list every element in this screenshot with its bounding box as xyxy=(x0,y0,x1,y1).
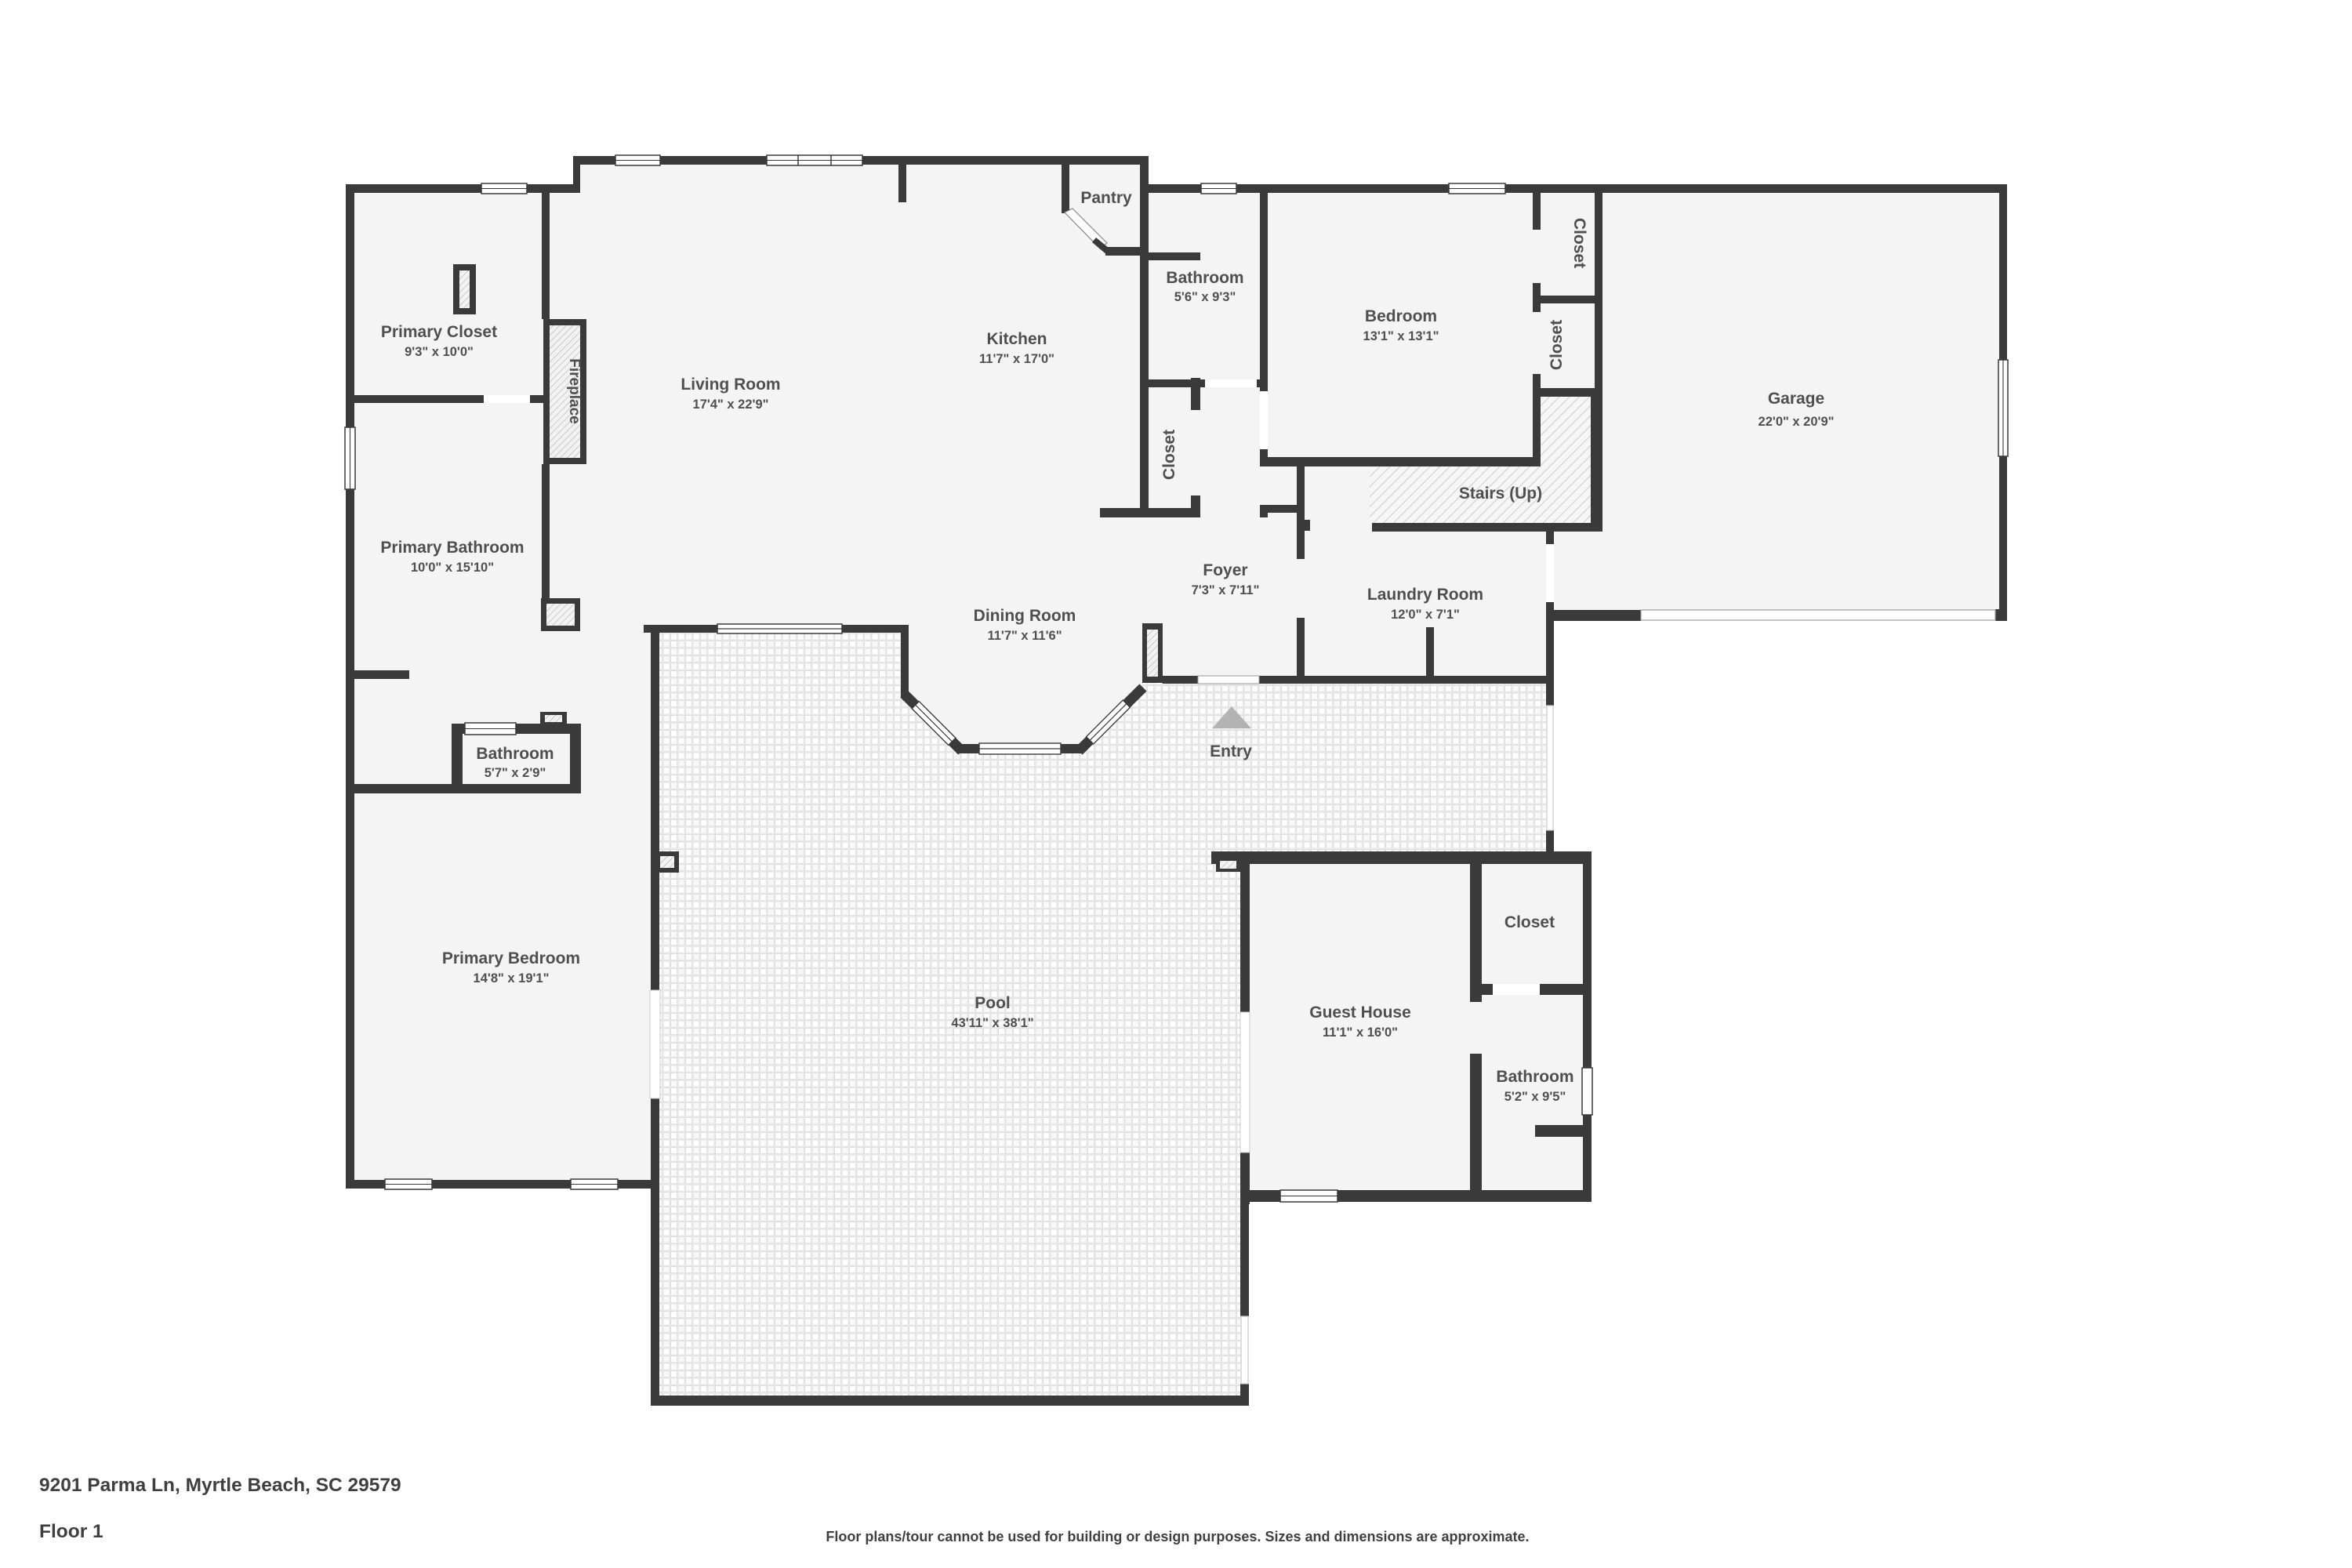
svg-text:Closet: Closet xyxy=(1160,430,1178,480)
svg-text:Pantry: Pantry xyxy=(1080,189,1132,207)
svg-text:Fireplace: Fireplace xyxy=(566,358,583,423)
svg-text:14'8" x 19'1": 14'8" x 19'1" xyxy=(474,971,550,985)
svg-text:Bathroom: Bathroom xyxy=(1166,269,1243,287)
svg-text:Entry: Entry xyxy=(1210,742,1252,760)
svg-text:5'2" x 9'5": 5'2" x 9'5" xyxy=(1504,1090,1566,1104)
svg-text:11'7" x 17'0": 11'7" x 17'0" xyxy=(979,352,1054,366)
svg-text:9'3" x 10'0": 9'3" x 10'0" xyxy=(405,345,474,359)
svg-text:Bathroom: Bathroom xyxy=(1496,1068,1573,1086)
svg-text:13'1" x 13'1": 13'1" x 13'1" xyxy=(1363,329,1439,343)
svg-text:Stairs (Up): Stairs (Up) xyxy=(1459,485,1542,503)
svg-text:7'3" x 7'11": 7'3" x 7'11" xyxy=(1192,583,1260,597)
svg-text:Primary Bedroom: Primary Bedroom xyxy=(442,949,580,967)
svg-text:Primary Closet: Primary Closet xyxy=(381,323,497,341)
svg-text:43'11" x 38'1": 43'11" x 38'1" xyxy=(951,1016,1033,1030)
svg-text:Closet: Closet xyxy=(1548,320,1566,370)
svg-text:9201 Parma Ln, Myrtle Beach, S: 9201 Parma Ln, Myrtle Beach, SC 29579 xyxy=(39,1475,401,1496)
svg-text:Living Room: Living Room xyxy=(681,376,780,394)
svg-text:Bedroom: Bedroom xyxy=(1365,307,1437,325)
svg-text:Guest House: Guest House xyxy=(1309,1004,1411,1022)
svg-text:11'7" x 11'6": 11'7" x 11'6" xyxy=(987,629,1062,643)
svg-text:22'0" x 20'9": 22'0" x 20'9" xyxy=(1759,415,1835,429)
svg-text:Laundry Room: Laundry Room xyxy=(1367,586,1483,604)
svg-text:Garage: Garage xyxy=(1768,390,1824,408)
svg-text:Bathroom: Bathroom xyxy=(476,745,554,763)
svg-text:11'1" x 16'0": 11'1" x 16'0" xyxy=(1323,1025,1398,1040)
svg-text:Kitchen: Kitchen xyxy=(986,330,1047,348)
svg-text:Dining Room: Dining Room xyxy=(974,607,1076,625)
svg-text:Foyer: Foyer xyxy=(1203,561,1247,579)
svg-text:17'4" x 22'9": 17'4" x 22'9" xyxy=(693,397,769,412)
svg-text:Pool: Pool xyxy=(975,994,1011,1012)
svg-text:10'0" x 15'10": 10'0" x 15'10" xyxy=(411,561,494,575)
svg-text:5'6" x 9'3": 5'6" x 9'3" xyxy=(1174,290,1236,304)
svg-text:Floor 1: Floor 1 xyxy=(39,1521,103,1542)
svg-text:Floor plans/tour cannot be use: Floor plans/tour cannot be used for buil… xyxy=(826,1529,1529,1544)
svg-text:5'7" x 2'9": 5'7" x 2'9" xyxy=(485,766,546,780)
svg-text:Primary Bathroom: Primary Bathroom xyxy=(380,539,524,557)
svg-text:Closet: Closet xyxy=(1504,913,1555,931)
svg-text:Closet: Closet xyxy=(1570,218,1588,268)
svg-text:12'0" x 7'1": 12'0" x 7'1" xyxy=(1391,608,1460,622)
